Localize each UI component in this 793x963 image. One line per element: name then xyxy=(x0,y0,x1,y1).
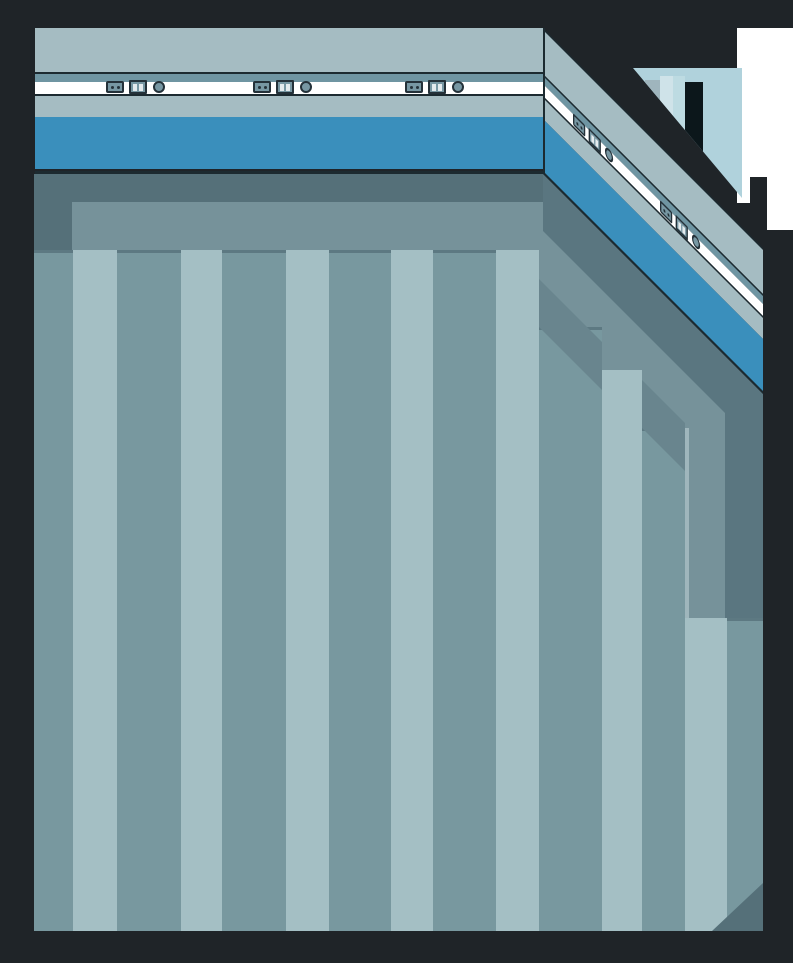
utility-panel-group xyxy=(253,80,315,94)
round-button-icon xyxy=(300,81,312,93)
floor-stripe-medium xyxy=(727,618,763,931)
floor-stripe-medium xyxy=(117,250,181,931)
light-switch-icon xyxy=(276,80,294,94)
utility-panel-group xyxy=(106,80,168,94)
room-scene xyxy=(0,0,793,963)
floor-stripe-medium xyxy=(433,250,496,931)
floor-stripe-medium xyxy=(34,250,73,931)
right-shadow-column xyxy=(725,410,763,618)
round-button-icon xyxy=(452,81,464,93)
floor-stripe-light xyxy=(685,618,727,931)
floor-stripe-light xyxy=(602,370,642,931)
floor-stripe-light xyxy=(286,250,329,931)
floor-stripe-medium xyxy=(642,428,685,931)
floor-stripe-medium xyxy=(222,250,286,931)
wall-upper-band xyxy=(35,28,543,72)
floor-corner-shadow xyxy=(34,174,72,250)
outside-light-area-lower xyxy=(767,177,793,230)
floor-stripe-medium xyxy=(539,327,602,931)
power-outlet-icon xyxy=(253,81,271,93)
floor-stripe-light xyxy=(181,250,222,931)
floor-stripe-light xyxy=(391,250,433,931)
round-button-icon xyxy=(153,81,165,93)
floor xyxy=(34,174,763,931)
power-outlet-icon xyxy=(106,81,124,93)
floor-stripe-light xyxy=(73,250,117,931)
floor-stripe-medium xyxy=(329,250,391,931)
light-switch-icon xyxy=(428,80,446,94)
wall-lower-gray-band xyxy=(35,96,543,117)
light-switch-icon xyxy=(129,80,147,94)
step-highlight-edge xyxy=(685,428,689,618)
wall-corner-edge xyxy=(543,28,545,174)
front-wall xyxy=(35,28,543,174)
utility-panel-group xyxy=(405,80,467,94)
outside-light-area xyxy=(737,28,793,177)
floor-stripe-light xyxy=(496,250,539,931)
wall-blue-band xyxy=(35,117,543,169)
power-outlet-icon xyxy=(405,81,423,93)
